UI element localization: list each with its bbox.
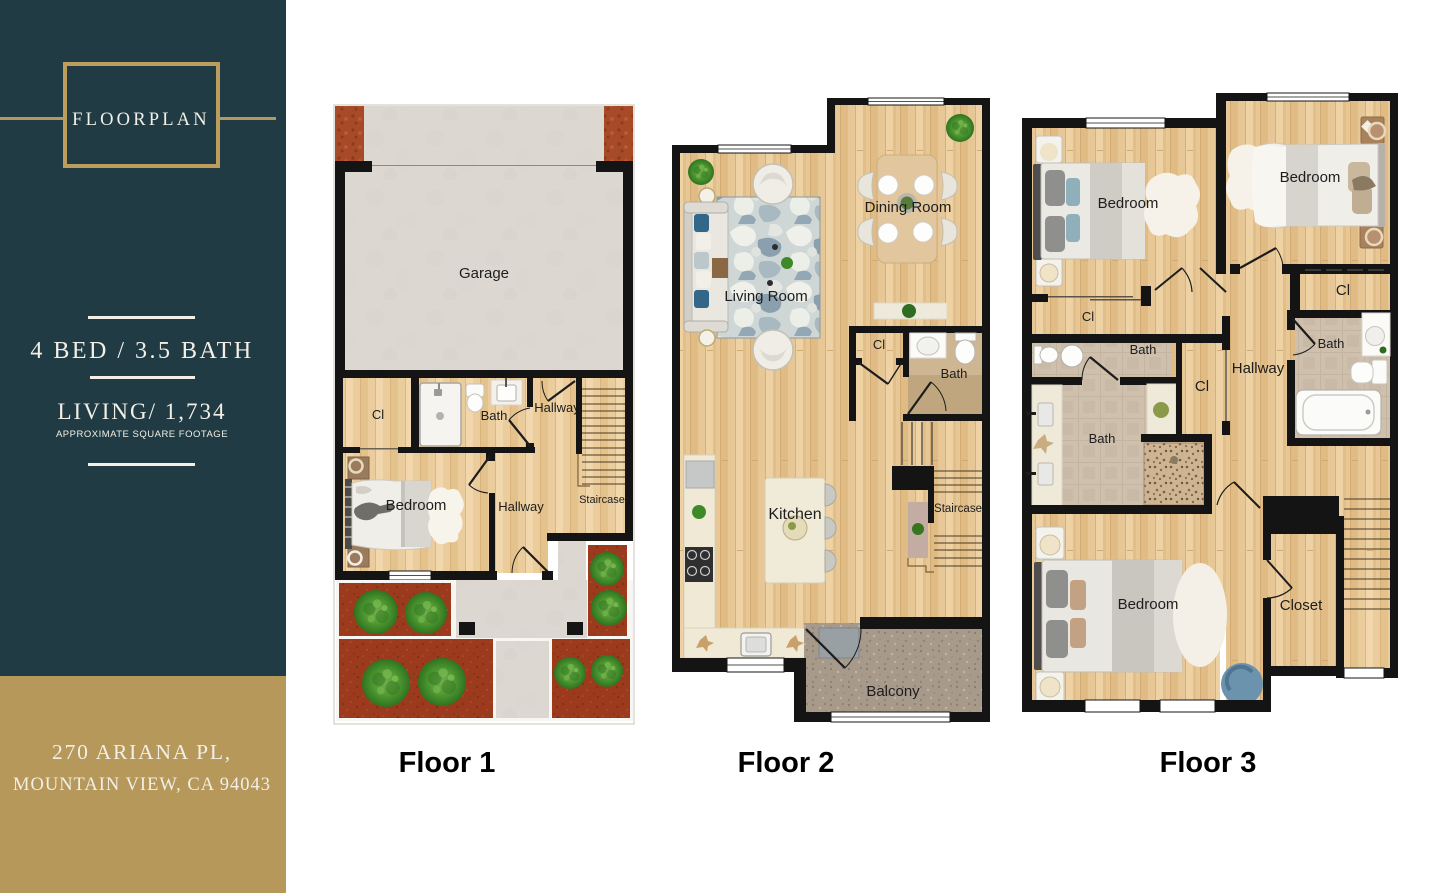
svg-text:Hallway: Hallway: [1232, 360, 1285, 377]
svg-text:Hallway: Hallway: [534, 400, 580, 415]
svg-text:Cl: Cl: [1336, 282, 1350, 299]
svg-text:270 ARIANA PL,: 270 ARIANA PL,: [52, 740, 232, 764]
svg-text:Bath: Bath: [1089, 431, 1116, 446]
svg-text:Floor 2: Floor 2: [738, 747, 835, 779]
svg-text:Garage: Garage: [459, 265, 509, 282]
svg-text:Bath: Bath: [481, 408, 508, 423]
svg-text:Hallway: Hallway: [498, 499, 544, 514]
svg-text:Cl: Cl: [1082, 309, 1094, 324]
svg-text:Bedroom: Bedroom: [1098, 195, 1159, 212]
svg-text:Staircase: Staircase: [934, 503, 982, 515]
svg-text:MOUNTAIN VIEW, CA 94043: MOUNTAIN VIEW, CA 94043: [13, 775, 271, 795]
svg-text:4 BED / 3.5 BATH: 4 BED / 3.5 BATH: [30, 338, 253, 364]
svg-text:FLOORPLAN: FLOORPLAN: [72, 110, 210, 130]
svg-text:Cl: Cl: [1195, 378, 1209, 395]
svg-text:Bath: Bath: [941, 366, 968, 381]
svg-text:Bedroom: Bedroom: [1118, 596, 1179, 613]
svg-text:Balcony: Balcony: [866, 683, 920, 700]
svg-text:Floor 3: Floor 3: [1160, 747, 1257, 779]
svg-text:Bath: Bath: [1318, 336, 1345, 351]
svg-text:Living Room: Living Room: [724, 288, 807, 305]
svg-text:Cl: Cl: [873, 337, 885, 352]
svg-text:Bedroom: Bedroom: [386, 497, 447, 514]
svg-text:Staircase: Staircase: [579, 494, 625, 506]
svg-text:Kitchen: Kitchen: [768, 506, 821, 523]
svg-text:Floor 1: Floor 1: [399, 747, 496, 779]
svg-text:LIVING/ 1,734: LIVING/ 1,734: [57, 399, 226, 424]
svg-text:Bath: Bath: [1130, 342, 1157, 357]
svg-text:Dining Room: Dining Room: [865, 199, 952, 216]
svg-text:APPROXIMATE SQUARE FOOTAGE: APPROXIMATE SQUARE FOOTAGE: [56, 429, 228, 440]
svg-text:Closet: Closet: [1280, 597, 1323, 614]
svg-text:Cl: Cl: [372, 407, 384, 422]
svg-text:Bedroom: Bedroom: [1280, 169, 1341, 186]
